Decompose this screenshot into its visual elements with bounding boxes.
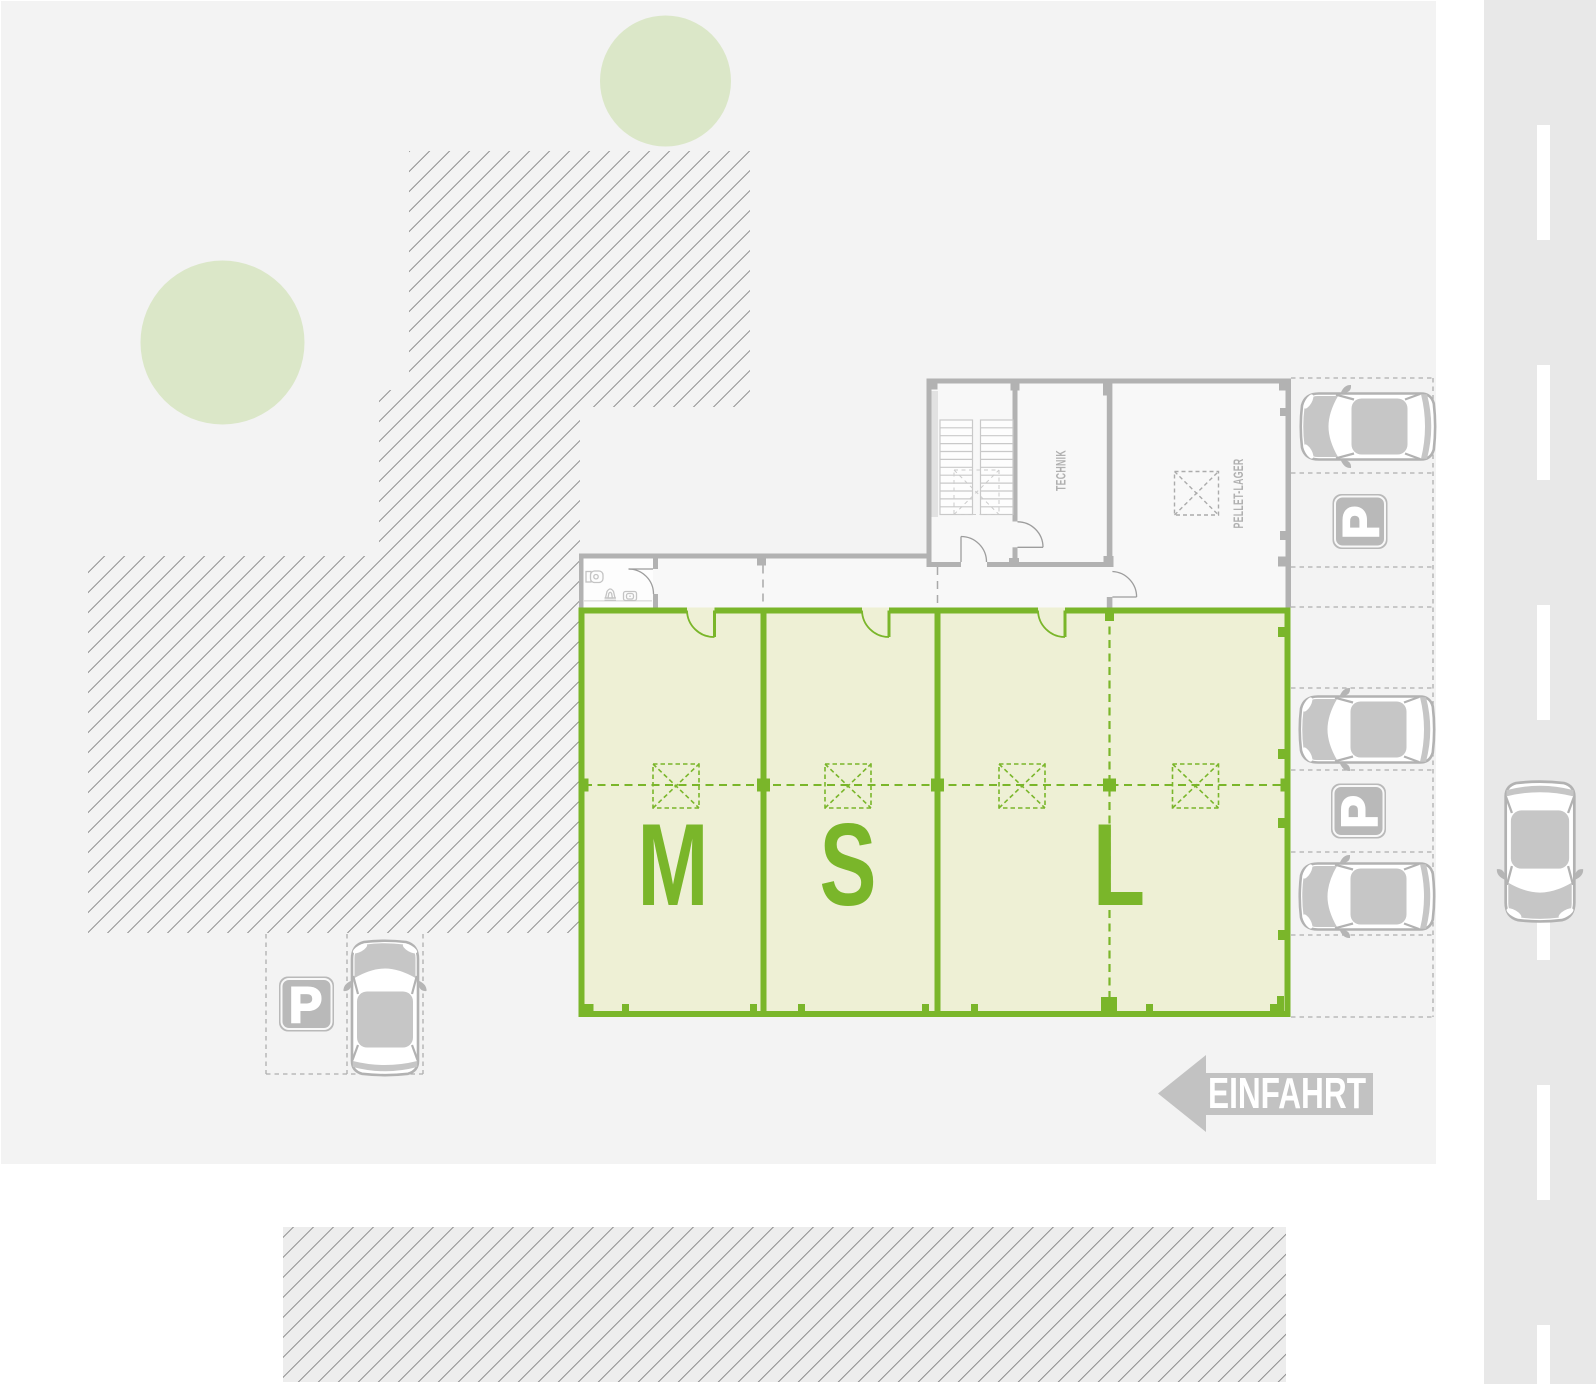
svg-text:S: S [820, 799, 877, 930]
svg-text:M: M [637, 799, 708, 930]
svg-text:TECHNIK: TECHNIK [1054, 450, 1069, 491]
svg-text:PELLET-LAGER: PELLET-LAGER [1230, 459, 1246, 529]
svg-text:L: L [1093, 799, 1145, 930]
svg-text:EINFAHRT: EINFAHRT [1208, 1069, 1366, 1118]
